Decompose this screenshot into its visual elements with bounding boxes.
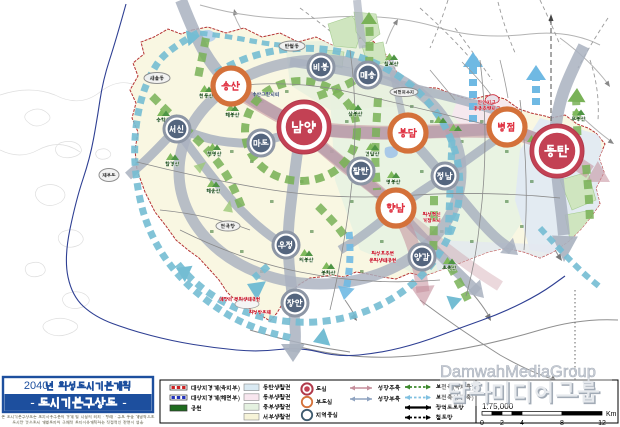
svg-text:-: - bbox=[122, 395, 127, 410]
svg-text:·: · bbox=[115, 414, 117, 419]
svg-text:8: 8 bbox=[560, 420, 564, 427]
svg-text:Km: Km bbox=[606, 411, 617, 418]
svg-text:0: 0 bbox=[480, 420, 484, 427]
svg-text:2: 2 bbox=[500, 420, 504, 427]
svg-text:4: 4 bbox=[520, 420, 524, 427]
svg-text:12: 12 bbox=[598, 420, 606, 427]
svg-text:·: · bbox=[103, 414, 105, 419]
svg-text:): ) bbox=[238, 385, 240, 392]
svg-text:-: - bbox=[30, 395, 35, 410]
svg-text:): ) bbox=[238, 395, 240, 402]
svg-text:2040: 2040 bbox=[24, 380, 48, 392]
